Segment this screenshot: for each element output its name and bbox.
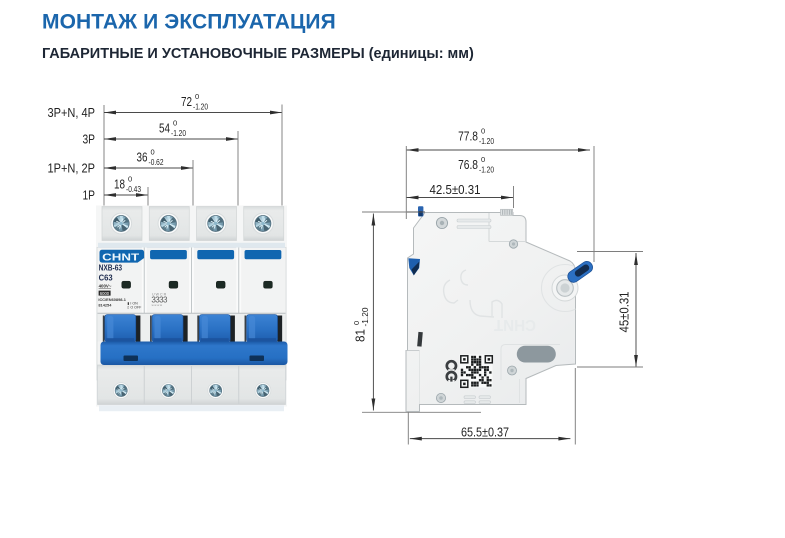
svg-text:▯ O OFF: ▯ O OFF xyxy=(127,306,142,310)
svg-text:18: 18 xyxy=(114,177,125,192)
svg-text:0: 0 xyxy=(128,175,132,184)
svg-text:0: 0 xyxy=(481,127,485,136)
svg-text:36: 36 xyxy=(137,150,148,165)
svg-text:-1.20: -1.20 xyxy=(479,136,494,146)
svg-text:C63: C63 xyxy=(99,273,113,282)
svg-text:-1.20: -1.20 xyxy=(171,128,186,138)
svg-text:-0.62: -0.62 xyxy=(149,157,164,167)
svg-text:▮ I ON: ▮ I ON xyxy=(127,301,138,305)
svg-text:0: 0 xyxy=(195,92,199,101)
svg-text:1P: 1P xyxy=(83,189,96,203)
svg-text:54: 54 xyxy=(159,121,170,136)
svg-text:0: 0 xyxy=(481,155,485,164)
svg-text:3P+N, 4P: 3P+N, 4P xyxy=(48,106,96,120)
svg-text:ICC/EN60898-1: ICC/EN60898-1 xyxy=(98,297,126,302)
svg-text:400V~: 400V~ xyxy=(99,283,112,288)
svg-text:72: 72 xyxy=(181,94,192,109)
svg-text:-0.43: -0.43 xyxy=(126,184,141,194)
svg-text:-1.20: -1.20 xyxy=(479,165,494,175)
svg-text:76.8: 76.8 xyxy=(458,157,478,172)
svg-text:42.5±0.31: 42.5±0.31 xyxy=(430,182,481,197)
svg-text:w w w w: w w w w xyxy=(152,303,163,307)
svg-text:81: 81 xyxy=(353,329,368,342)
svg-text:45±0.31: 45±0.31 xyxy=(617,292,632,333)
svg-text:65.5±0.37: 65.5±0.37 xyxy=(461,425,509,440)
svg-text:77.8: 77.8 xyxy=(458,129,478,144)
svg-text:NXB-63: NXB-63 xyxy=(99,263,123,273)
svg-text:1P+N, 2P: 1P+N, 2P xyxy=(48,162,96,176)
svg-text:0: 0 xyxy=(151,148,155,157)
svg-text:-1.20: -1.20 xyxy=(360,307,370,326)
svg-text:0: 0 xyxy=(173,119,177,128)
svg-text:814254: 814254 xyxy=(98,303,112,308)
svg-text:-1.20: -1.20 xyxy=(193,102,208,112)
svg-text:ГАБАРИТНЫЕ И УСТАНОВОЧНЫЕ РАЗМ: ГАБАРИТНЫЕ И УСТАНОВОЧНЫЕ РАЗМЕРЫ (едини… xyxy=(42,46,474,62)
svg-text:3P: 3P xyxy=(83,133,96,147)
svg-text:МОНТАЖ И ЭКСПЛУАТАЦИЯ: МОНТАЖ И ЭКСПЛУАТАЦИЯ xyxy=(42,11,336,34)
svg-text:CHNT: CHNT xyxy=(494,316,536,333)
svg-text:6000: 6000 xyxy=(100,291,110,296)
